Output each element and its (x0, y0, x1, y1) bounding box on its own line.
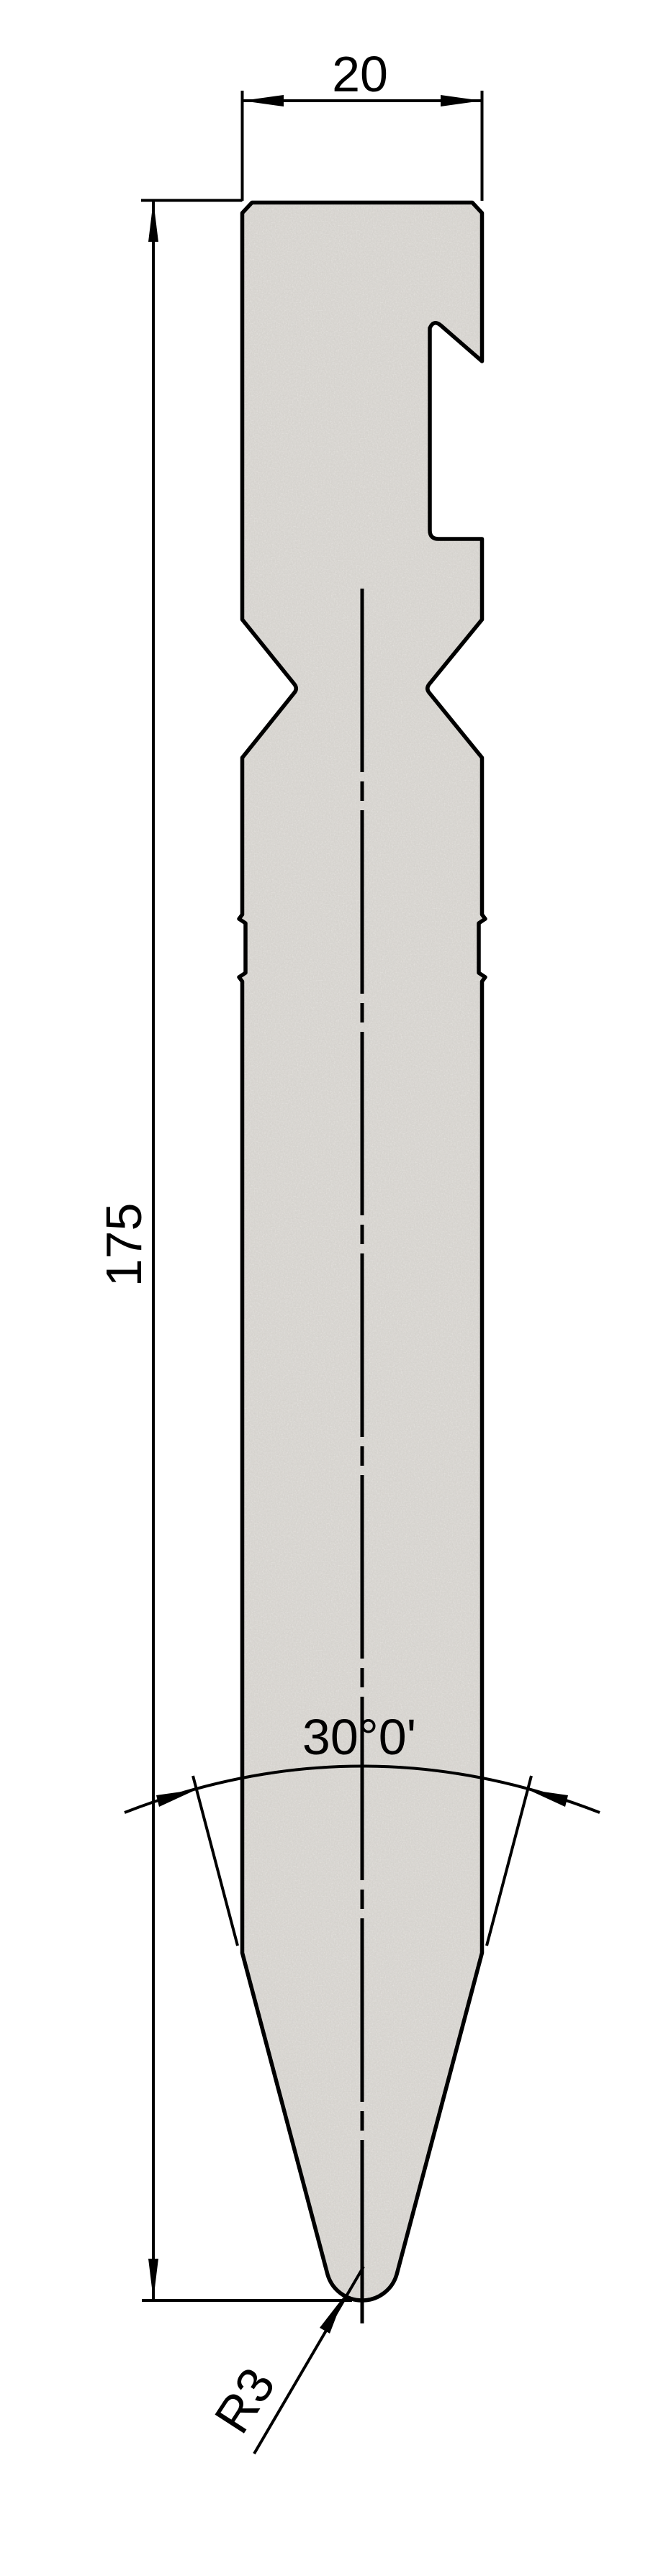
technical-drawing-svg: 20 175 30°0' R3 (0, 0, 653, 2576)
width-dimension-label: 20 (332, 46, 388, 102)
height-dimension-label: 175 (96, 1203, 152, 1287)
angle-dimension-label: 30°0' (302, 1709, 416, 1765)
drawing-canvas: 20 175 30°0' R3 (0, 0, 653, 2576)
